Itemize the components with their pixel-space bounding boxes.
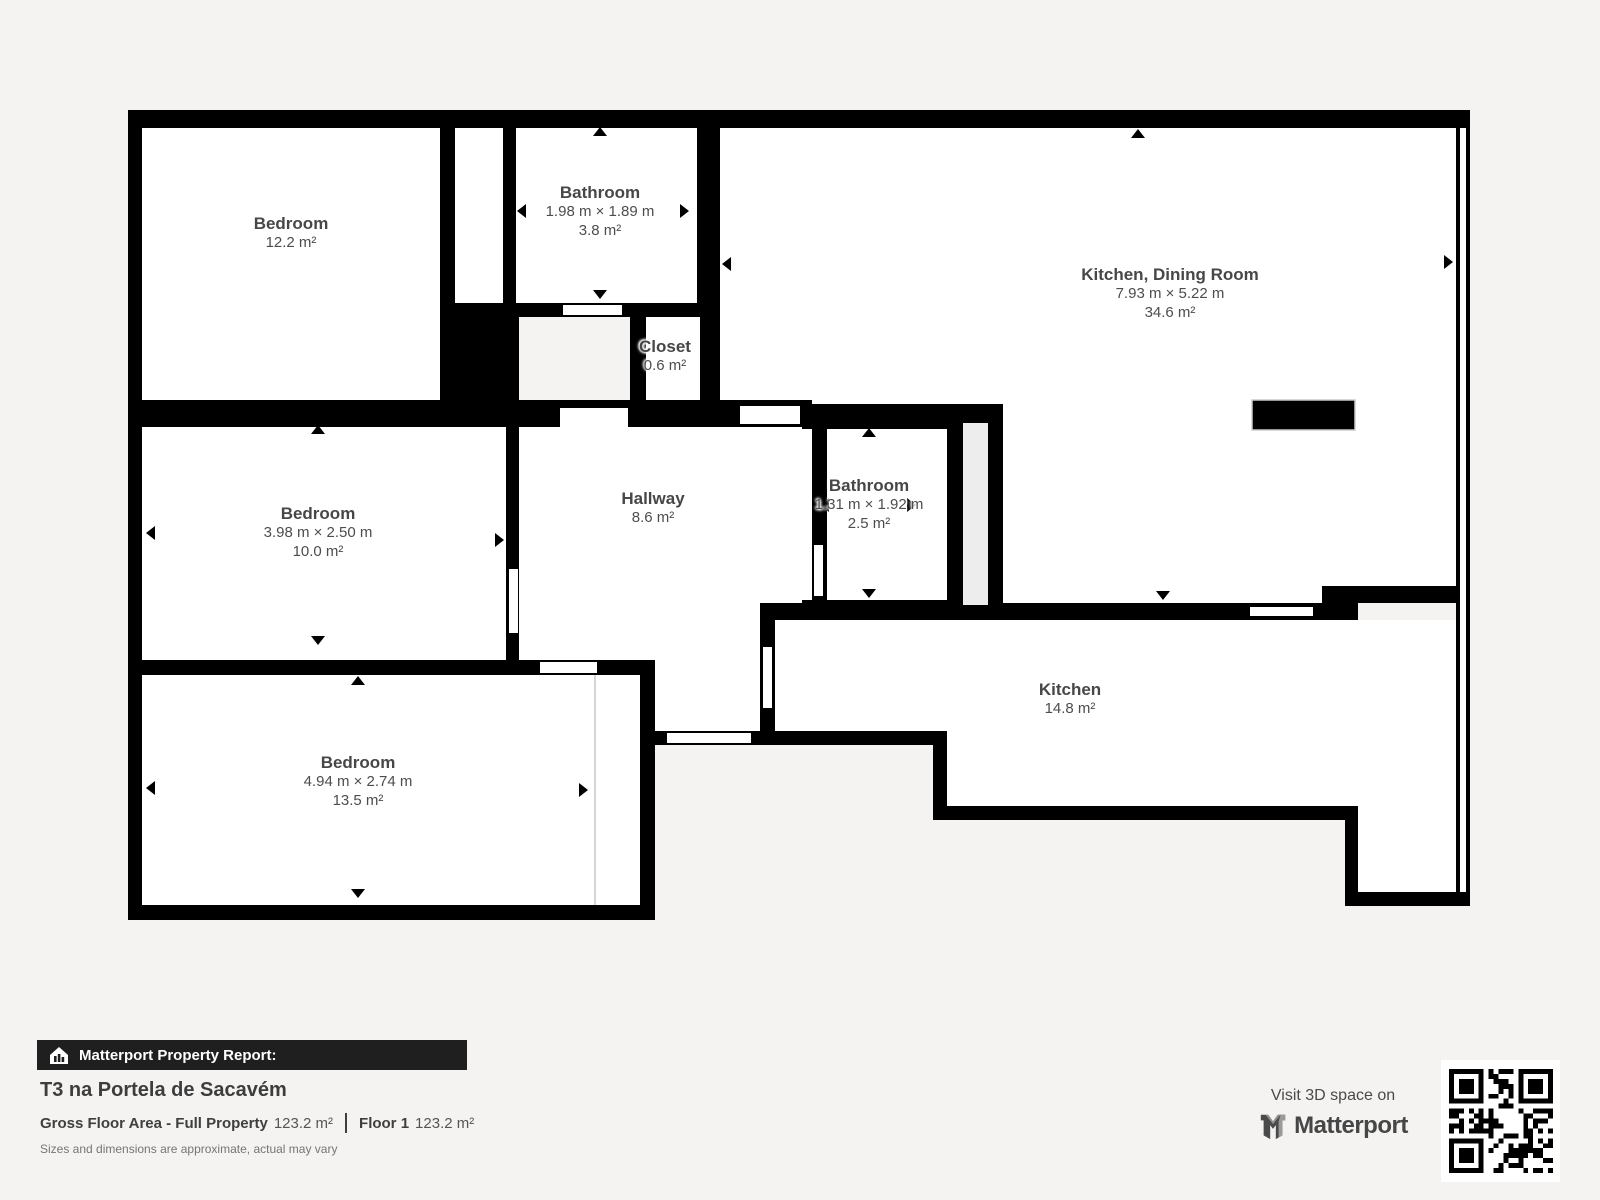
floor-plan bbox=[0, 0, 1600, 1200]
qr-code bbox=[1441, 1060, 1560, 1182]
report-banner-label: Matterport Property Report: bbox=[79, 1047, 277, 1064]
room-label-closet: Closet 0.6 m² bbox=[639, 337, 691, 375]
room-label-bedroom-1: Bedroom 12.2 m² bbox=[254, 214, 329, 252]
room-label-kitchen-dining: Kitchen, Dining Room 7.93 m × 5.22 m 34.… bbox=[1081, 265, 1259, 322]
duct-shaft bbox=[963, 423, 988, 605]
room-label-bedroom-2: Bedroom 3.98 m × 2.50 m 10.0 m² bbox=[264, 504, 373, 561]
room-label-bathroom-1: Bathroom 1.98 m × 1.89 m 3.8 m² bbox=[546, 183, 655, 240]
area-metrics: Gross Floor Area - Full Property 123.2 m… bbox=[40, 1113, 474, 1133]
visit-3d-label: Visit 3D space on bbox=[1243, 1087, 1423, 1105]
house-chart-icon bbox=[48, 1044, 70, 1066]
property-title: T3 na Portela de Sacavém bbox=[40, 1079, 287, 1102]
gross-floor-area-label: Gross Floor Area - Full Property bbox=[40, 1115, 268, 1132]
window-strip bbox=[1460, 128, 1466, 892]
report-banner: Matterport Property Report: bbox=[37, 1040, 467, 1070]
floor1-value: 123.2 m² bbox=[415, 1115, 474, 1132]
gross-floor-area-value: 123.2 m² bbox=[274, 1115, 333, 1132]
room-label-hallway: Hallway 8.6 m² bbox=[621, 489, 684, 527]
disclaimer-text: Sizes and dimensions are approximate, ac… bbox=[40, 1142, 337, 1156]
matterport-m-icon bbox=[1258, 1111, 1288, 1141]
room-label-bedroom-3: Bedroom 4.94 m × 2.74 m 13.5 m² bbox=[304, 753, 413, 810]
floor1-label: Floor 1 bbox=[359, 1115, 409, 1132]
matterport-wordmark: Matterport bbox=[1294, 1112, 1408, 1140]
counter-island bbox=[1252, 400, 1355, 430]
room-label-bathroom-2: Bathroom 1.31 m × 1.92 m 2.5 m² bbox=[815, 476, 924, 533]
room-label-kitchen: Kitchen 14.8 m² bbox=[1039, 680, 1101, 718]
metrics-divider bbox=[345, 1113, 347, 1133]
visit-3d-cta: Visit 3D space on Matterport bbox=[1243, 1087, 1423, 1141]
